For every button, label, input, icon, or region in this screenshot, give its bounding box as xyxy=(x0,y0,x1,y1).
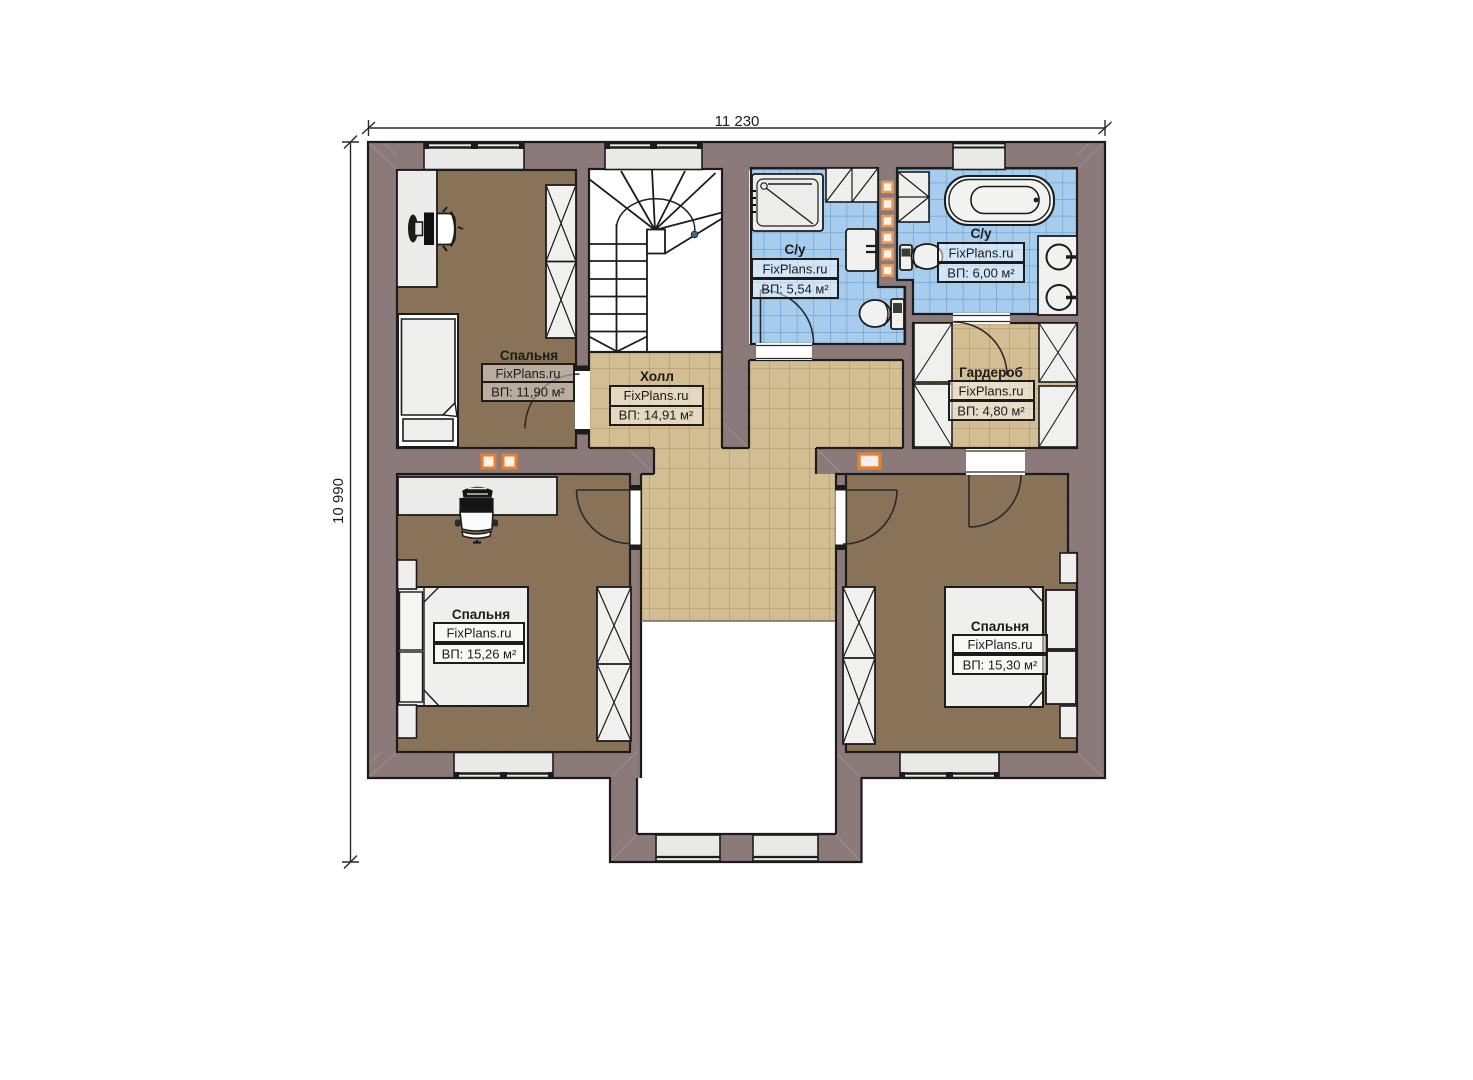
svg-text:С/у: С/у xyxy=(970,226,992,241)
svg-text:ВП: 4,80 м²: ВП: 4,80 м² xyxy=(957,404,1025,419)
svg-text:ВП: 11,90 м²: ВП: 11,90 м² xyxy=(491,385,565,400)
svg-text:ВП: 5,54 м²: ВП: 5,54 м² xyxy=(761,282,829,297)
svg-text:Спальня: Спальня xyxy=(452,607,510,622)
svg-text:10 990: 10 990 xyxy=(330,478,347,524)
svg-text:Спальня: Спальня xyxy=(500,348,558,363)
svg-text:Холл: Холл xyxy=(640,369,674,384)
svg-text:FixPlans.ru: FixPlans.ru xyxy=(495,366,560,381)
svg-text:FixPlans.ru: FixPlans.ru xyxy=(762,262,827,277)
svg-text:ВП: 15,30 м²: ВП: 15,30 м² xyxy=(963,658,1038,673)
svg-text:ВП: 14,91 м²: ВП: 14,91 м² xyxy=(619,408,694,423)
svg-text:ВП: 6,00 м²: ВП: 6,00 м² xyxy=(947,266,1015,281)
svg-text:Спальня: Спальня xyxy=(971,619,1029,634)
svg-text:ВП: 15,26 м²: ВП: 15,26 м² xyxy=(442,647,517,662)
svg-text:С/у: С/у xyxy=(784,242,806,257)
svg-text:FixPlans.ru: FixPlans.ru xyxy=(967,637,1032,652)
svg-text:FixPlans.ru: FixPlans.ru xyxy=(623,388,688,403)
svg-text:FixPlans.ru: FixPlans.ru xyxy=(958,384,1023,399)
svg-text:Гардероб: Гардероб xyxy=(959,365,1023,380)
svg-text:FixPlans.ru: FixPlans.ru xyxy=(948,246,1013,261)
svg-text:11 230: 11 230 xyxy=(715,113,760,130)
svg-text:FixPlans.ru: FixPlans.ru xyxy=(446,626,511,641)
